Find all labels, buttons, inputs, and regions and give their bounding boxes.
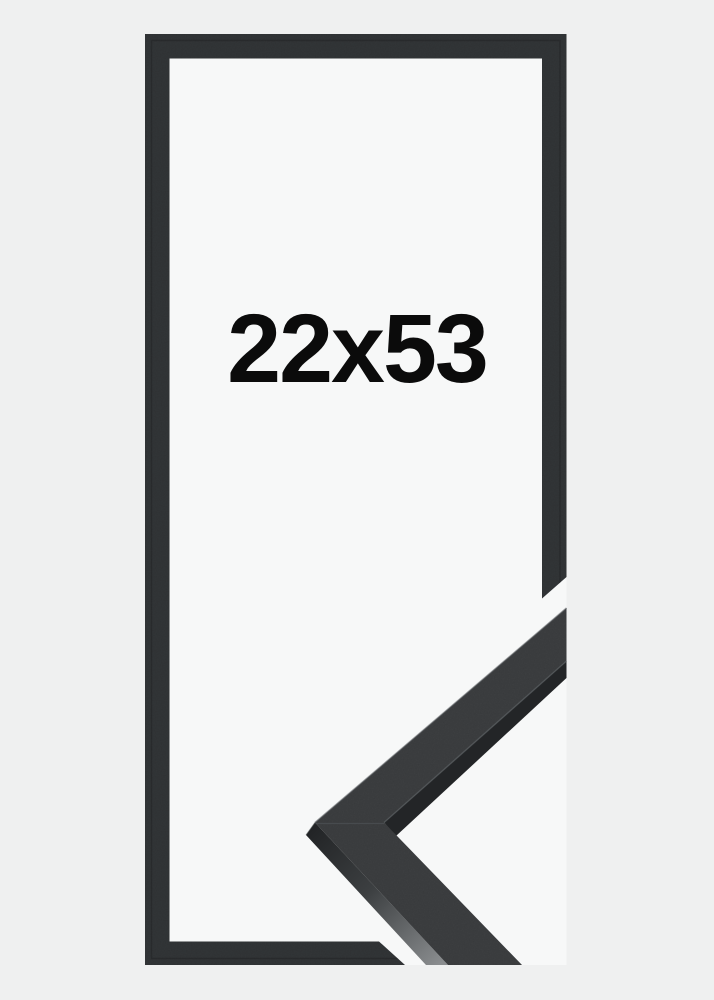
frame-graphic-svg: 22x53 bbox=[0, 0, 714, 1000]
size-label: 22x53 bbox=[227, 294, 487, 403]
product-image-frame-22x53: 22x53 bbox=[0, 0, 714, 1000]
